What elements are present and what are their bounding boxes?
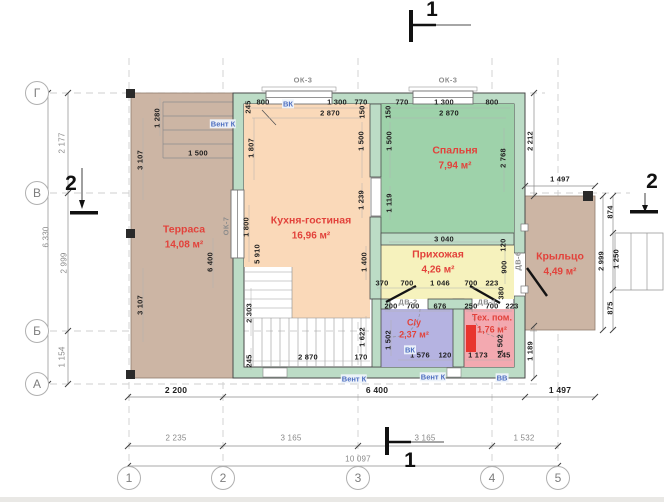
bathroom-floor xyxy=(381,309,453,367)
kitchen-floor xyxy=(244,104,370,267)
screenshot-edge-artifact xyxy=(0,497,664,502)
bedroom-door-opening xyxy=(371,178,381,216)
floor-plan: Терраса 14,08 м² Кухня-гостиная 16,96 м²… xyxy=(0,0,664,502)
hall-floor xyxy=(381,245,514,299)
boiler xyxy=(466,325,476,352)
kitchen-floor-2 xyxy=(292,267,370,318)
porch-stairs xyxy=(615,233,663,290)
terrace-floor xyxy=(131,93,233,378)
plan-drawing xyxy=(0,0,664,502)
porch-floor xyxy=(525,196,595,330)
bedroom-floor xyxy=(381,104,514,233)
